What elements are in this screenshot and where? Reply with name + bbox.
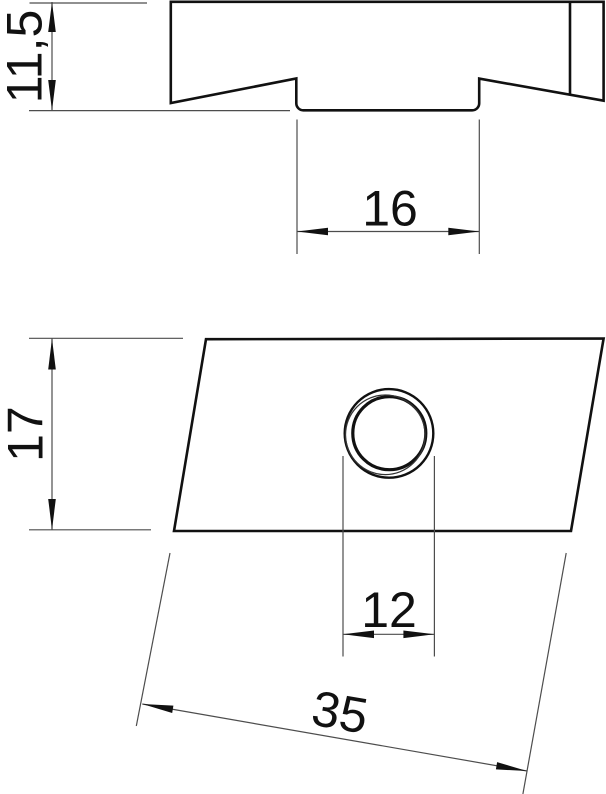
svg-text:16: 16 <box>362 181 418 237</box>
svg-text:35: 35 <box>308 680 372 745</box>
svg-text:12: 12 <box>361 582 417 638</box>
svg-text:17: 17 <box>0 406 54 462</box>
svg-text:11,5: 11,5 <box>0 10 53 104</box>
